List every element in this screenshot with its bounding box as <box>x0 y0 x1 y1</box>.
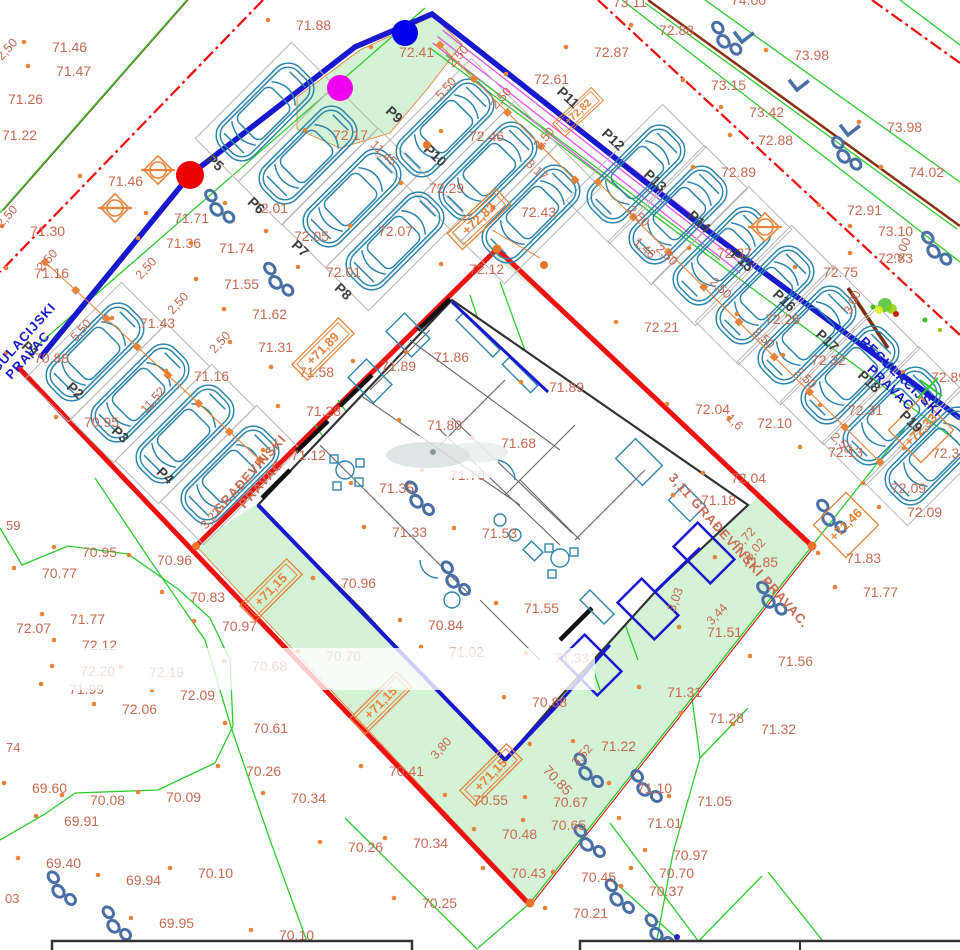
svg-text:70.34: 70.34 <box>291 790 326 806</box>
spot-elevation: 69.95 <box>129 915 195 931</box>
svg-text:72.06: 72.06 <box>122 701 157 717</box>
dimension-label: 2,50 <box>165 290 192 317</box>
svg-text:72.87: 72.87 <box>594 44 629 60</box>
parking-stall-label: P5 <box>204 151 228 175</box>
svg-text:70.97: 70.97 <box>673 847 708 863</box>
site-plan-canvas: 71.8871.4671.4771.2671.2271.4671.3071.16… <box>0 0 960 950</box>
svg-text:71.89: 71.89 <box>381 358 416 374</box>
svg-text:72.09: 72.09 <box>891 480 926 496</box>
spot-elevation: 71.47 <box>26 63 92 79</box>
spot-elevation: 70.45 <box>551 869 617 885</box>
spot-elevation: 70.95 <box>52 544 118 560</box>
svg-text:72.46: 72.46 <box>469 128 504 144</box>
svg-text:71.74: 71.74 <box>219 240 254 256</box>
spot-elevation: 70.37 <box>619 883 685 899</box>
svg-text:71.35: 71.35 <box>379 480 414 496</box>
spot-elevation: 71.46 <box>22 39 88 55</box>
spot-elevation: 72.09 <box>877 504 943 520</box>
svg-text:71.62: 71.62 <box>252 306 287 322</box>
car-icon <box>129 378 241 490</box>
svg-text:71.36: 71.36 <box>166 235 201 251</box>
svg-text:71.47: 71.47 <box>56 63 91 79</box>
spot-elevation: 72.88 <box>629 22 695 38</box>
spot-elevation: 70.34 <box>383 835 449 851</box>
svg-text:72.91: 72.91 <box>847 202 882 218</box>
svg-text:74: 74 <box>6 740 20 755</box>
dimension-label: 5,50 <box>433 75 460 102</box>
svg-text:72.89: 72.89 <box>931 369 960 385</box>
svg-text:73.15: 73.15 <box>711 77 746 93</box>
spot-elevation: 70.09 <box>136 789 202 805</box>
boxed-elevation: +72,82 <box>447 188 510 249</box>
svg-text:70.65: 70.65 <box>551 817 586 833</box>
bush-icon <box>97 905 133 945</box>
svg-text:70.88: 70.88 <box>532 694 567 710</box>
svg-text:73.98: 73.98 <box>887 119 922 135</box>
svg-text:70.84: 70.84 <box>428 617 463 633</box>
svg-text:70.09: 70.09 <box>166 789 201 805</box>
title-block <box>52 941 960 950</box>
regulation-dash-line-corner <box>872 0 960 63</box>
svg-text:70.25: 70.25 <box>422 895 457 911</box>
spot-elevation: 70.08 <box>60 792 126 808</box>
svg-text:73.42: 73.42 <box>749 104 784 120</box>
spot-elevation: 69.94 <box>96 872 162 888</box>
magenta-marker-dot <box>327 75 353 101</box>
svg-text:71.68: 71.68 <box>501 435 536 451</box>
spot-elevation: 70.26 <box>216 763 282 779</box>
svg-text:71.31: 71.31 <box>667 684 702 700</box>
spot-elevation: 71.16 <box>164 368 230 384</box>
spot-elevation: 72.87 <box>564 44 630 60</box>
tree-icon <box>98 191 132 225</box>
svg-text:70.26: 70.26 <box>246 763 281 779</box>
car-icon <box>84 337 196 449</box>
dimension-label: 2,50 <box>0 203 20 230</box>
spot-elevation: 70.43 <box>481 865 547 881</box>
svg-text:70.96: 70.96 <box>157 552 192 568</box>
spot-elevation: 72.01 <box>296 264 362 280</box>
svg-text:+72,82: +72,82 <box>459 199 499 237</box>
svg-text:70.21: 70.21 <box>573 905 608 921</box>
svg-text:69.60: 69.60 <box>32 780 67 796</box>
svg-text:72.17: 72.17 <box>333 127 368 143</box>
parking-stall-label: P2 <box>64 379 88 403</box>
level-mark-icon <box>840 116 860 135</box>
spot-elevation: 71.22 <box>0 127 37 143</box>
svg-text:72.89: 72.89 <box>721 164 756 180</box>
svg-text:73.11: 73.11 <box>613 0 647 10</box>
svg-text:72.09: 72.09 <box>907 504 942 520</box>
svg-text:70.70: 70.70 <box>659 865 694 881</box>
svg-text:71.30: 71.30 <box>30 223 65 239</box>
svg-text:70.95: 70.95 <box>82 544 117 560</box>
spot-elevation: 71.30 <box>0 223 65 239</box>
svg-text:72.04: 72.04 <box>695 401 730 417</box>
tree-icon <box>141 153 175 187</box>
spot-elevation: 70.10 <box>168 865 234 881</box>
svg-text:71.56: 71.56 <box>778 653 813 669</box>
svg-text:71.46: 71.46 <box>52 39 87 55</box>
spot-elevation: 72.88 <box>728 132 794 148</box>
svg-text:70.41: 70.41 <box>389 763 424 779</box>
svg-text:71.28: 71.28 <box>709 710 744 726</box>
spot-elevation: 59 <box>0 518 20 533</box>
svg-text:70.96: 70.96 <box>341 575 376 591</box>
svg-text:70.77: 70.77 <box>42 565 77 581</box>
spot-elevation: 69.60 <box>2 780 68 796</box>
svg-text:74.02: 74.02 <box>909 164 944 180</box>
spot-elevation: 70.21 <box>543 905 609 921</box>
bush-icon <box>258 261 295 300</box>
svg-text:71.26: 71.26 <box>8 91 43 107</box>
svg-text:70.97: 70.97 <box>222 618 257 634</box>
spot-elevation: 70.26 <box>318 839 384 855</box>
svg-text:71.89: 71.89 <box>549 379 584 395</box>
car-icon <box>339 185 451 297</box>
spot-elevation: 70.70 <box>629 865 695 881</box>
bush-icon <box>916 230 953 269</box>
svg-text:70.55: 70.55 <box>473 792 508 808</box>
svg-text:72.21: 72.21 <box>644 319 679 335</box>
svg-text:71.12: 71.12 <box>291 447 326 463</box>
svg-text:72.04: 72.04 <box>731 470 766 486</box>
svg-text:73.98: 73.98 <box>794 47 829 63</box>
svg-text:71.43: 71.43 <box>140 315 175 331</box>
svg-text:70.67: 70.67 <box>553 794 588 810</box>
svg-text:71.05: 71.05 <box>697 793 732 809</box>
svg-text:70.10: 70.10 <box>198 865 233 881</box>
svg-text:71.32: 71.32 <box>761 721 796 737</box>
spot-elevation: 71.26 <box>0 91 43 107</box>
spot-elevation: 70.25 <box>392 895 458 911</box>
blue-marker-dot <box>392 20 418 46</box>
svg-text:72.88: 72.88 <box>758 132 793 148</box>
svg-text:71.22: 71.22 <box>601 738 636 754</box>
svg-text:71.80: 71.80 <box>427 417 462 433</box>
svg-text:72.07: 72.07 <box>378 223 413 239</box>
svg-text:71.53: 71.53 <box>482 525 517 541</box>
spot-elevation: 72.32 <box>781 352 847 368</box>
svg-text:+71,89: +71,89 <box>303 329 342 368</box>
svg-text:70.34: 70.34 <box>413 835 448 851</box>
dimension-label: 2,50 <box>0 36 20 63</box>
parking-stall-label: P8 <box>332 280 356 304</box>
spot-elevation: 03 <box>0 891 19 906</box>
spot-elevation: 72.91 <box>817 202 883 218</box>
spot-elevation: 74.02 <box>879 164 945 180</box>
dimension-label: 2,50 <box>653 242 680 269</box>
svg-text:71.01: 71.01 <box>647 815 682 831</box>
svg-text:72.07: 72.07 <box>16 620 51 636</box>
spot-elevation: 70.77 <box>12 565 78 581</box>
svg-text:70.48: 70.48 <box>502 826 537 842</box>
svg-text:70.45: 70.45 <box>581 869 616 885</box>
svg-text:71.46: 71.46 <box>108 173 143 189</box>
svg-text:71.28: 71.28 <box>306 403 341 419</box>
spot-elevation: 70.34 <box>261 790 327 806</box>
spot-elevation: 71.58 <box>269 364 335 380</box>
svg-text:72.01: 72.01 <box>326 264 361 280</box>
svg-text:70.43: 70.43 <box>511 865 546 881</box>
svg-text:71.33: 71.33 <box>392 524 427 540</box>
svg-text:69.40: 69.40 <box>46 855 81 871</box>
spot-elevation: 72.26 <box>735 311 801 327</box>
svg-text:70.26: 70.26 <box>348 839 383 855</box>
svg-text:71.77: 71.77 <box>70 611 105 627</box>
svg-text:72.75: 72.75 <box>823 264 858 280</box>
spot-elevation: 70.97 <box>643 847 709 863</box>
svg-text:69.91: 69.91 <box>64 813 99 829</box>
dimension-label: 2,50 <box>207 329 234 356</box>
spot-elevation: 71.62 <box>222 306 288 322</box>
spot-elevation: 74 <box>0 740 20 755</box>
svg-text:70.08: 70.08 <box>90 792 125 808</box>
svg-text:71.22: 71.22 <box>2 127 37 143</box>
svg-text:71.55: 71.55 <box>224 276 259 292</box>
bush-icon <box>826 135 863 174</box>
svg-text:74.00: 74.00 <box>731 0 766 8</box>
svg-text:71.31: 71.31 <box>258 339 293 355</box>
spot-elevation: 69.40 <box>16 855 82 871</box>
svg-text:70.37: 70.37 <box>649 883 684 899</box>
spot-elevation: 72.46 <box>439 128 505 144</box>
svg-text:59: 59 <box>6 518 20 533</box>
svg-text:71.55: 71.55 <box>524 600 559 616</box>
spot-elevation: 71.56 <box>748 653 814 669</box>
svg-text:71.88: 71.88 <box>296 17 331 33</box>
spot-elevation: 71.77 <box>833 584 899 600</box>
level-mark-icon <box>789 71 809 90</box>
bush-icon <box>42 870 78 910</box>
spot-elevation: 73.11 <box>583 0 648 10</box>
svg-text:71.16: 71.16 <box>194 368 229 384</box>
svg-text:71.71: 71.71 <box>174 210 209 226</box>
spot-elevation: 73.42 <box>719 104 785 120</box>
svg-text:03: 03 <box>5 891 19 906</box>
red-marker-dot <box>176 161 204 189</box>
spot-elevation: 71.83 <box>816 550 882 566</box>
svg-text:72.88: 72.88 <box>659 22 694 38</box>
spot-elevation: 72.12 <box>439 261 505 277</box>
svg-text:69.94: 69.94 <box>126 872 161 888</box>
svg-text:71.10: 71.10 <box>637 780 672 796</box>
spot-elevation: 71.28 <box>276 403 342 419</box>
spot-elevation: 72.21 <box>614 319 680 335</box>
spot-elevation: 70.97 <box>192 618 258 634</box>
svg-text:73.10: 73.10 <box>878 223 913 239</box>
spot-elevation: 71.43 <box>110 315 176 331</box>
small-blue-dot <box>674 934 680 940</box>
svg-text:70.83: 70.83 <box>190 589 225 605</box>
spot-elevation: 71.05 <box>667 793 733 809</box>
svg-text:72.32: 72.32 <box>811 352 846 368</box>
svg-text:71.86: 71.86 <box>434 349 469 365</box>
svg-text:72.41: 72.41 <box>399 44 434 60</box>
spot-elevation: 71.55 <box>194 276 260 292</box>
svg-text:70.61: 70.61 <box>253 720 288 736</box>
spot-elevation: 71.88 <box>266 17 332 33</box>
dimension-label: 2,50 <box>792 365 819 392</box>
scrub-tree-icon <box>871 298 943 332</box>
svg-text:69.95: 69.95 <box>159 915 194 931</box>
svg-text:72.26: 72.26 <box>765 311 800 327</box>
spot-elevation: 72.07 <box>0 620 51 636</box>
svg-text:72.29: 72.29 <box>429 180 464 196</box>
dimension-label: 8,17 <box>523 157 550 184</box>
spot-elevation: 72.06 <box>92 701 158 717</box>
svg-text:71.77: 71.77 <box>863 584 898 600</box>
spot-elevation: 70.41 <box>359 763 425 779</box>
svg-text:72.10: 72.10 <box>757 415 792 431</box>
spot-elevation: 73.98 <box>857 119 923 135</box>
svg-text:72.31: 72.31 <box>848 402 883 418</box>
svg-text:72.12: 72.12 <box>469 261 504 277</box>
spot-elevation: 71.31 <box>228 339 294 355</box>
spot-elevation: 72.75 <box>793 264 859 280</box>
svg-text:72.43: 72.43 <box>521 204 556 220</box>
spot-elevation: 71.01 <box>617 815 683 831</box>
site-plan-drawing: 71.8871.4671.4771.2671.2271.4671.3071.16… <box>0 0 960 950</box>
spot-elevation: 70.83 <box>160 589 226 605</box>
dimension-label: 2,50 <box>750 325 777 352</box>
